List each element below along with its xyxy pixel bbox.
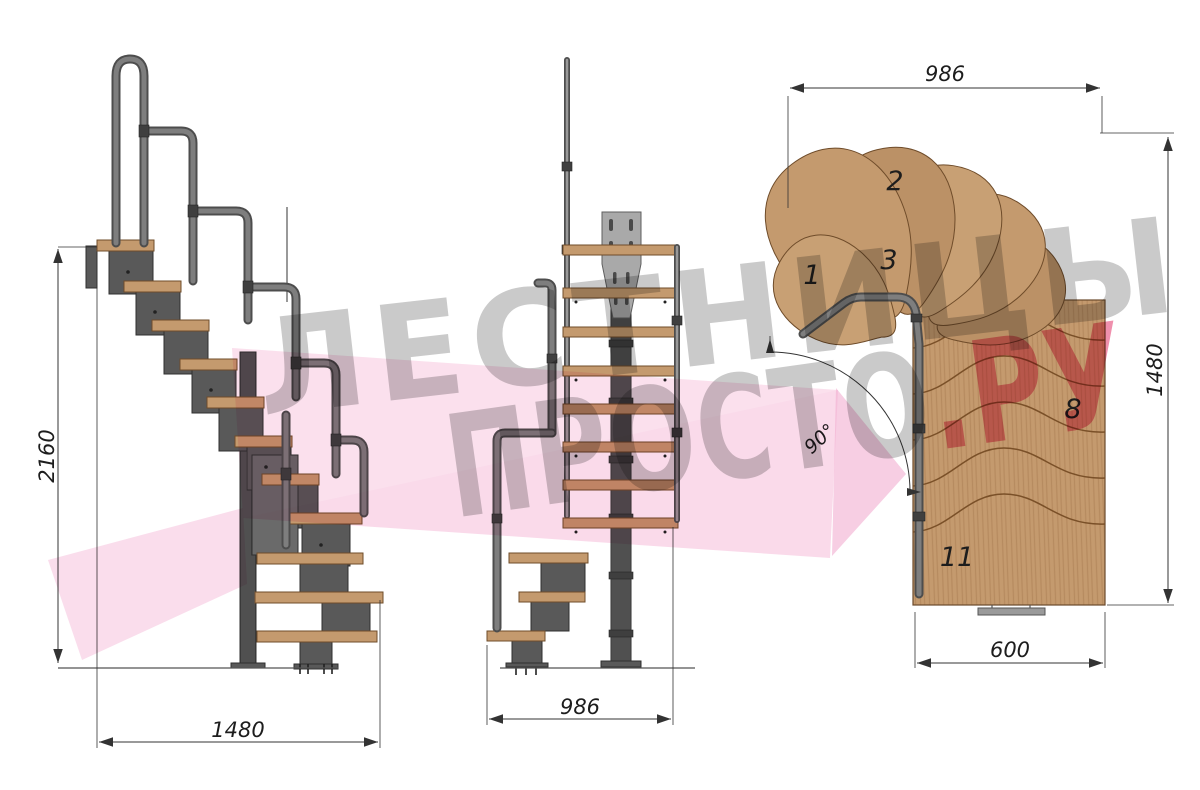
dimension-label-plan-height-right: 1480 xyxy=(1143,340,1167,400)
staircase-drawing xyxy=(0,0,1200,790)
dimension-label-plan-width-bottom: 600 xyxy=(975,638,1045,662)
plan-view-drawing xyxy=(739,88,1174,668)
dimension-label-front-width: 986 xyxy=(545,695,615,719)
plan-angle-arc xyxy=(766,336,921,496)
front-center-column xyxy=(611,282,631,664)
front-handrails xyxy=(492,247,682,628)
front-lower-steps xyxy=(487,553,588,675)
step-number-11: 11 xyxy=(937,542,977,573)
step-number-8: 8 xyxy=(1053,394,1093,425)
step-number-3: 3 xyxy=(869,245,909,276)
side-view-drawing xyxy=(58,59,383,748)
technical-drawing-canvas: 2160 1480 986 986 1480 600 90° 1 2 3 8 1… xyxy=(0,0,1200,790)
dimension-label-side-height: 2160 xyxy=(35,426,59,486)
plan-foot-plate xyxy=(978,605,1045,615)
step-number-2: 2 xyxy=(875,166,915,197)
front-mounting-plate xyxy=(602,212,641,318)
front-view-drawing xyxy=(487,60,695,725)
dimension-label-side-length: 1480 xyxy=(198,718,278,742)
step-number-1: 1 xyxy=(792,260,832,291)
dimension-label-plan-width-top: 986 xyxy=(910,62,980,86)
